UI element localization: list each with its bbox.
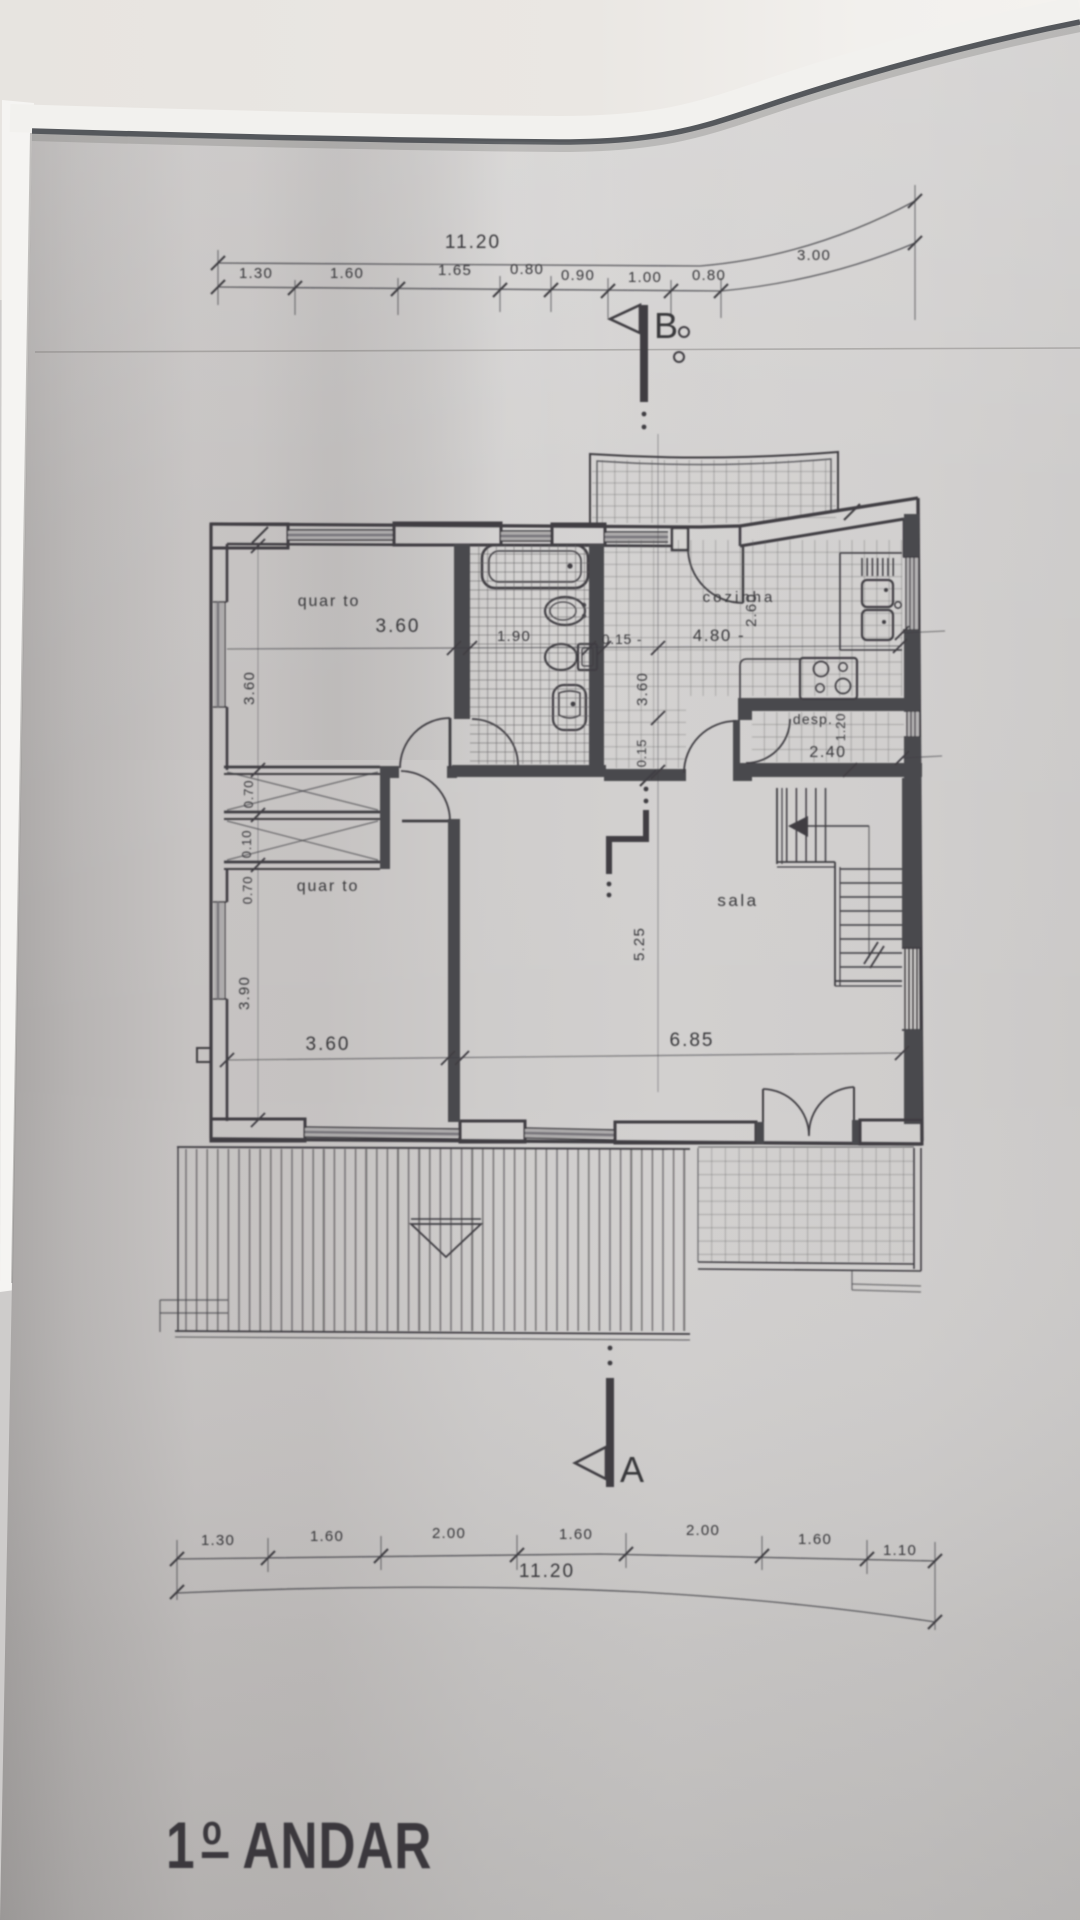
svg-text:0.90: 0.90	[561, 267, 595, 284]
svg-text:3.00: 3.00	[797, 247, 831, 264]
svg-text:3.60: 3.60	[376, 616, 421, 637]
svg-text:0.15: 0.15	[634, 739, 649, 768]
svg-text:6.85: 6.85	[670, 1030, 715, 1051]
svg-text:1.30: 1.30	[201, 1532, 235, 1549]
svg-text:1.20: 1.20	[833, 713, 848, 742]
svg-text:0.70: 0.70	[241, 780, 256, 809]
svg-text:0.70: 0.70	[240, 876, 255, 905]
svg-text:0.15 -: 0.15 -	[602, 631, 643, 647]
svg-text:B: B	[654, 305, 678, 346]
svg-text:2.00: 2.00	[686, 1522, 720, 1539]
svg-text:5.25: 5.25	[631, 927, 648, 961]
svg-text:0.80: 0.80	[510, 261, 544, 278]
svg-text:2.40: 2.40	[809, 744, 846, 761]
svg-text:4.80 -: 4.80 -	[693, 626, 745, 645]
svg-text:1.60: 1.60	[310, 1528, 344, 1545]
svg-text:1.90: 1.90	[497, 628, 531, 645]
svg-text:o: o	[202, 1806, 222, 1853]
svg-text:ANDAR: ANDAR	[242, 1808, 432, 1883]
svg-text:3.60: 3.60	[241, 671, 258, 705]
svg-text:1: 1	[166, 1808, 195, 1883]
svg-text:quar to: quar to	[297, 878, 359, 895]
svg-text:1.60: 1.60	[798, 1531, 832, 1548]
svg-text:1.30: 1.30	[239, 265, 273, 282]
svg-text:1.65: 1.65	[438, 262, 472, 279]
svg-text:0.10: 0.10	[239, 830, 254, 859]
svg-text:11.20: 11.20	[519, 1561, 575, 1582]
svg-text:1.10: 1.10	[883, 1542, 917, 1559]
svg-text:1.60: 1.60	[559, 1526, 593, 1543]
svg-text:1.60: 1.60	[330, 265, 364, 282]
svg-text:11.20: 11.20	[445, 232, 501, 253]
svg-text:1.00: 1.00	[628, 269, 662, 286]
svg-text:quar to: quar to	[298, 593, 360, 610]
svg-text:desp.: desp.	[793, 711, 833, 727]
svg-text:3.60: 3.60	[306, 1034, 351, 1055]
svg-text:A: A	[620, 1449, 644, 1490]
svg-text:sala: sala	[717, 891, 758, 910]
svg-text:cozinha: cozinha	[703, 589, 776, 606]
svg-text:3.60: 3.60	[634, 672, 651, 706]
svg-text:0.80: 0.80	[692, 267, 726, 284]
svg-text:3.90: 3.90	[236, 976, 253, 1010]
svg-text:2.00: 2.00	[432, 1525, 466, 1542]
